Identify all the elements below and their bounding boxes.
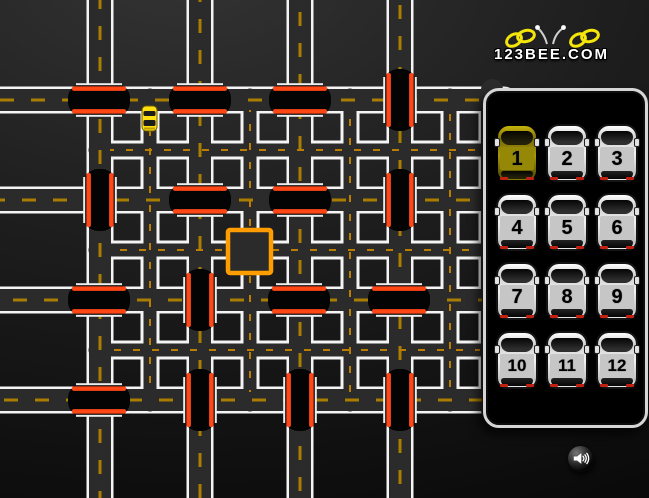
car-taillight-left <box>500 384 508 387</box>
car-windshield <box>501 131 533 145</box>
car-mirror-left <box>494 138 500 147</box>
car-mirror-left <box>544 207 550 216</box>
logo: 123BEE.COM <box>492 24 644 66</box>
car-taillight-left <box>550 246 558 249</box>
car-taillight-right <box>626 384 634 387</box>
car-number: 4 <box>511 218 522 238</box>
car-roof: 8 <box>550 285 584 308</box>
game-stage: 123BEE.COM 123456789101112 <box>0 0 649 498</box>
barrier[interactable] <box>68 83 130 117</box>
car-windshield <box>601 269 633 283</box>
car-windshield <box>551 338 583 352</box>
target-square <box>228 230 271 273</box>
car-mirror-right <box>584 138 590 147</box>
car-mirror-right <box>584 276 590 285</box>
car-windshield <box>601 338 633 352</box>
car-taillight-left <box>600 177 608 180</box>
car-number: 1 <box>511 149 522 169</box>
car-taillight-right <box>626 246 634 249</box>
car-roof: 1 <box>500 147 534 170</box>
car-taillight-left <box>550 384 558 387</box>
level-car-5[interactable]: 5 <box>546 193 588 251</box>
level-car-3[interactable]: 3 <box>596 124 638 182</box>
car-windshield <box>551 200 583 214</box>
car-number: 9 <box>611 287 622 307</box>
car-taillight-left <box>500 315 508 318</box>
car-taillight-right <box>576 246 584 249</box>
barrier[interactable] <box>268 283 330 317</box>
car-number: 6 <box>611 218 622 238</box>
car-number: 12 <box>608 357 627 374</box>
level-car-grid: 123456789101112 <box>486 91 645 389</box>
car-windshield <box>601 131 633 145</box>
level-car-1[interactable]: 1 <box>496 124 538 182</box>
barrier[interactable] <box>283 369 317 431</box>
car-roof: 5 <box>550 216 584 239</box>
level-car-7[interactable]: 7 <box>496 262 538 320</box>
car-windshield <box>551 131 583 145</box>
car-mirror-right <box>634 345 640 354</box>
barrier[interactable] <box>269 83 331 117</box>
car-roof: 12 <box>600 354 634 377</box>
car-taillight-left <box>600 384 608 387</box>
car-mirror-left <box>594 138 600 147</box>
barrier[interactable] <box>383 169 417 231</box>
car-roof: 11 <box>550 354 584 377</box>
car-mirror-left <box>544 276 550 285</box>
player-car <box>142 106 157 131</box>
car-mirror-right <box>534 138 540 147</box>
car-taillight-right <box>626 315 634 318</box>
car-number: 10 <box>508 357 527 374</box>
car-roof: 3 <box>600 147 634 170</box>
car-mirror-left <box>594 207 600 216</box>
barrier[interactable] <box>269 183 331 217</box>
car-taillight-left <box>550 315 558 318</box>
barrier[interactable] <box>169 183 231 217</box>
car-windshield <box>501 269 533 283</box>
car-taillight-left <box>550 177 558 180</box>
car-mirror-left <box>494 276 500 285</box>
car-number: 3 <box>611 149 622 169</box>
car-taillight-left <box>600 315 608 318</box>
car-taillight-left <box>600 246 608 249</box>
car-taillight-right <box>526 177 534 180</box>
barrier[interactable] <box>83 169 117 231</box>
level-car-12[interactable]: 12 <box>596 331 638 389</box>
car-mirror-left <box>494 345 500 354</box>
speaker-icon <box>571 449 590 468</box>
car-roof: 9 <box>600 285 634 308</box>
car-mirror-left <box>594 276 600 285</box>
car-taillight-right <box>576 177 584 180</box>
car-mirror-right <box>634 207 640 216</box>
car-roof: 7 <box>500 285 534 308</box>
car-mirror-right <box>534 207 540 216</box>
car-taillight-left <box>500 177 508 180</box>
level-car-4[interactable]: 4 <box>496 193 538 251</box>
car-number: 5 <box>561 218 572 238</box>
car-taillight-right <box>576 315 584 318</box>
level-car-6[interactable]: 6 <box>596 193 638 251</box>
barrier[interactable] <box>383 369 417 431</box>
level-car-10[interactable]: 10 <box>496 331 538 389</box>
car-windshield <box>501 200 533 214</box>
car-windshield <box>501 338 533 352</box>
car-roof: 2 <box>550 147 584 170</box>
car-taillight-right <box>626 177 634 180</box>
car-mirror-right <box>634 276 640 285</box>
barrier[interactable] <box>169 83 231 117</box>
car-windshield <box>551 269 583 283</box>
car-roof: 10 <box>500 354 534 377</box>
level-car-9[interactable]: 9 <box>596 262 638 320</box>
barrier[interactable] <box>68 383 130 417</box>
car-taillight-left <box>500 246 508 249</box>
car-mirror-left <box>544 138 550 147</box>
car-number: 8 <box>561 287 572 307</box>
car-mirror-right <box>534 276 540 285</box>
barrier[interactable] <box>68 283 130 317</box>
car-taillight-right <box>526 384 534 387</box>
level-car-2[interactable]: 2 <box>546 124 588 182</box>
barrier[interactable] <box>183 369 217 431</box>
car-roof: 4 <box>500 216 534 239</box>
level-car-8[interactable]: 8 <box>546 262 588 320</box>
barrier[interactable] <box>383 69 417 131</box>
level-car-11[interactable]: 11 <box>546 331 588 389</box>
barrier[interactable] <box>183 269 217 331</box>
sound-button[interactable] <box>567 445 594 472</box>
car-number: 11 <box>558 357 576 374</box>
car-taillight-right <box>526 246 534 249</box>
car-mirror-left <box>594 345 600 354</box>
car-taillight-right <box>526 315 534 318</box>
car-mirror-right <box>534 345 540 354</box>
car-mirror-left <box>544 345 550 354</box>
logo-text: 123BEE.COM <box>494 46 644 63</box>
car-number: 2 <box>561 149 572 169</box>
car-mirror-right <box>634 138 640 147</box>
car-mirror-right <box>584 207 590 216</box>
car-mirror-right <box>584 345 590 354</box>
car-number: 7 <box>511 287 522 307</box>
car-mirror-left <box>494 207 500 216</box>
car-windshield <box>601 200 633 214</box>
car-roof: 6 <box>600 216 634 239</box>
barrier[interactable] <box>368 283 430 317</box>
level-select-panel: 123456789101112 <box>483 88 648 428</box>
car-taillight-right <box>576 384 584 387</box>
